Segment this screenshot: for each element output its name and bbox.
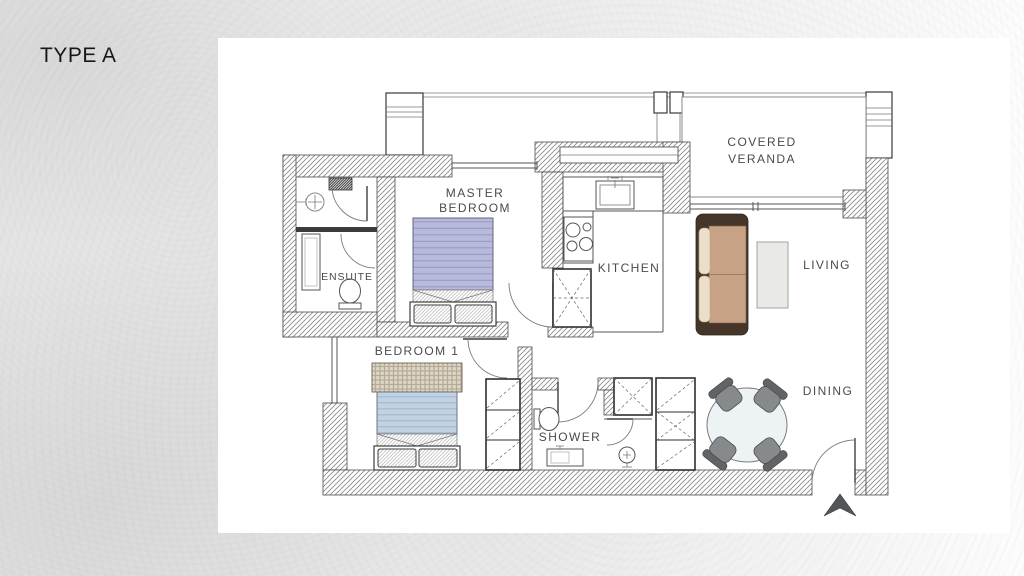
- floor-plan: COVERED VERANDA: [0, 0, 1024, 576]
- corridor: [463, 339, 507, 378]
- entrance: [812, 438, 856, 516]
- shower-label: SHOWER: [539, 430, 601, 444]
- door-arc: [468, 339, 507, 378]
- wall-segment: [598, 378, 614, 390]
- master-bedroom-label-line1: MASTER: [446, 186, 504, 200]
- bedroom1-label: BEDROOM 1: [375, 344, 460, 358]
- kitchen-sink: [596, 176, 634, 209]
- stove: [564, 217, 593, 261]
- wall-segment: [843, 190, 866, 218]
- door-arc: [812, 440, 855, 483]
- wardrobe: [486, 379, 520, 470]
- window-kitchen: [560, 147, 678, 163]
- column: [866, 92, 892, 158]
- wall-segment: [604, 390, 614, 415]
- ensuite: ENSUITE: [296, 178, 377, 309]
- wall-segment: [548, 327, 593, 337]
- shower-room: SHOWER: [534, 382, 601, 466]
- wall-segment: [542, 172, 563, 268]
- wall-segment: [283, 155, 452, 177]
- master-bedroom-label-line2: BEDROOM: [439, 201, 511, 215]
- vanity: [302, 234, 320, 290]
- door-arc: [341, 234, 375, 268]
- master-bed: [410, 218, 496, 326]
- bedroom1: BEDROOM 1: [372, 344, 520, 470]
- living-label: LIVING: [803, 258, 851, 272]
- wc-lobby: [604, 378, 695, 470]
- kitchen: KITCHEN: [553, 176, 663, 332]
- wall-segment: [855, 470, 866, 495]
- window-living: [690, 202, 845, 211]
- sofa: [696, 214, 748, 335]
- ensuite-label: ENSUITE: [321, 271, 373, 283]
- dining-label: DINING: [803, 384, 853, 398]
- covered-veranda-label-line2: VERANDA: [728, 152, 796, 166]
- door-arc: [332, 186, 367, 221]
- coffee-table: [757, 242, 788, 308]
- pedestal-sink: [619, 447, 635, 467]
- toilet: [339, 279, 361, 309]
- vanity: [547, 446, 583, 466]
- covered-veranda: COVERED VERANDA: [682, 97, 866, 197]
- wall-segment: [323, 470, 812, 495]
- wall-segment: [283, 155, 296, 337]
- door-arc: [509, 283, 553, 327]
- living-room: LIVING: [696, 214, 851, 335]
- window-master: [452, 161, 537, 170]
- window-bedroom1: [330, 337, 339, 403]
- column: [654, 92, 667, 113]
- wall-segment: [377, 177, 395, 322]
- storage-cabinet: [656, 378, 695, 470]
- slide: TYPE A: [0, 0, 1024, 576]
- wall-segment: [283, 312, 377, 337]
- kitchen-label: KITCHEN: [598, 261, 660, 275]
- toilet: [534, 408, 559, 431]
- column: [386, 93, 423, 155]
- fridge: [553, 269, 591, 327]
- partition: [296, 227, 377, 232]
- master-bedroom: MASTER BEDROOM: [410, 186, 553, 327]
- door-arc: [558, 382, 598, 422]
- entrance-arrow-icon: [824, 494, 856, 516]
- storage-cabinet: [614, 378, 652, 415]
- wall-segment: [866, 158, 888, 495]
- column: [670, 92, 683, 113]
- bedroom1-bed: [372, 363, 462, 470]
- shower-head-icon: [296, 193, 324, 211]
- wall-segment: [323, 403, 347, 470]
- door-arc: [607, 419, 633, 445]
- dining-area: DINING: [701, 376, 853, 472]
- covered-veranda-label-line1: COVERED: [727, 135, 796, 149]
- wall-segment: [532, 378, 558, 390]
